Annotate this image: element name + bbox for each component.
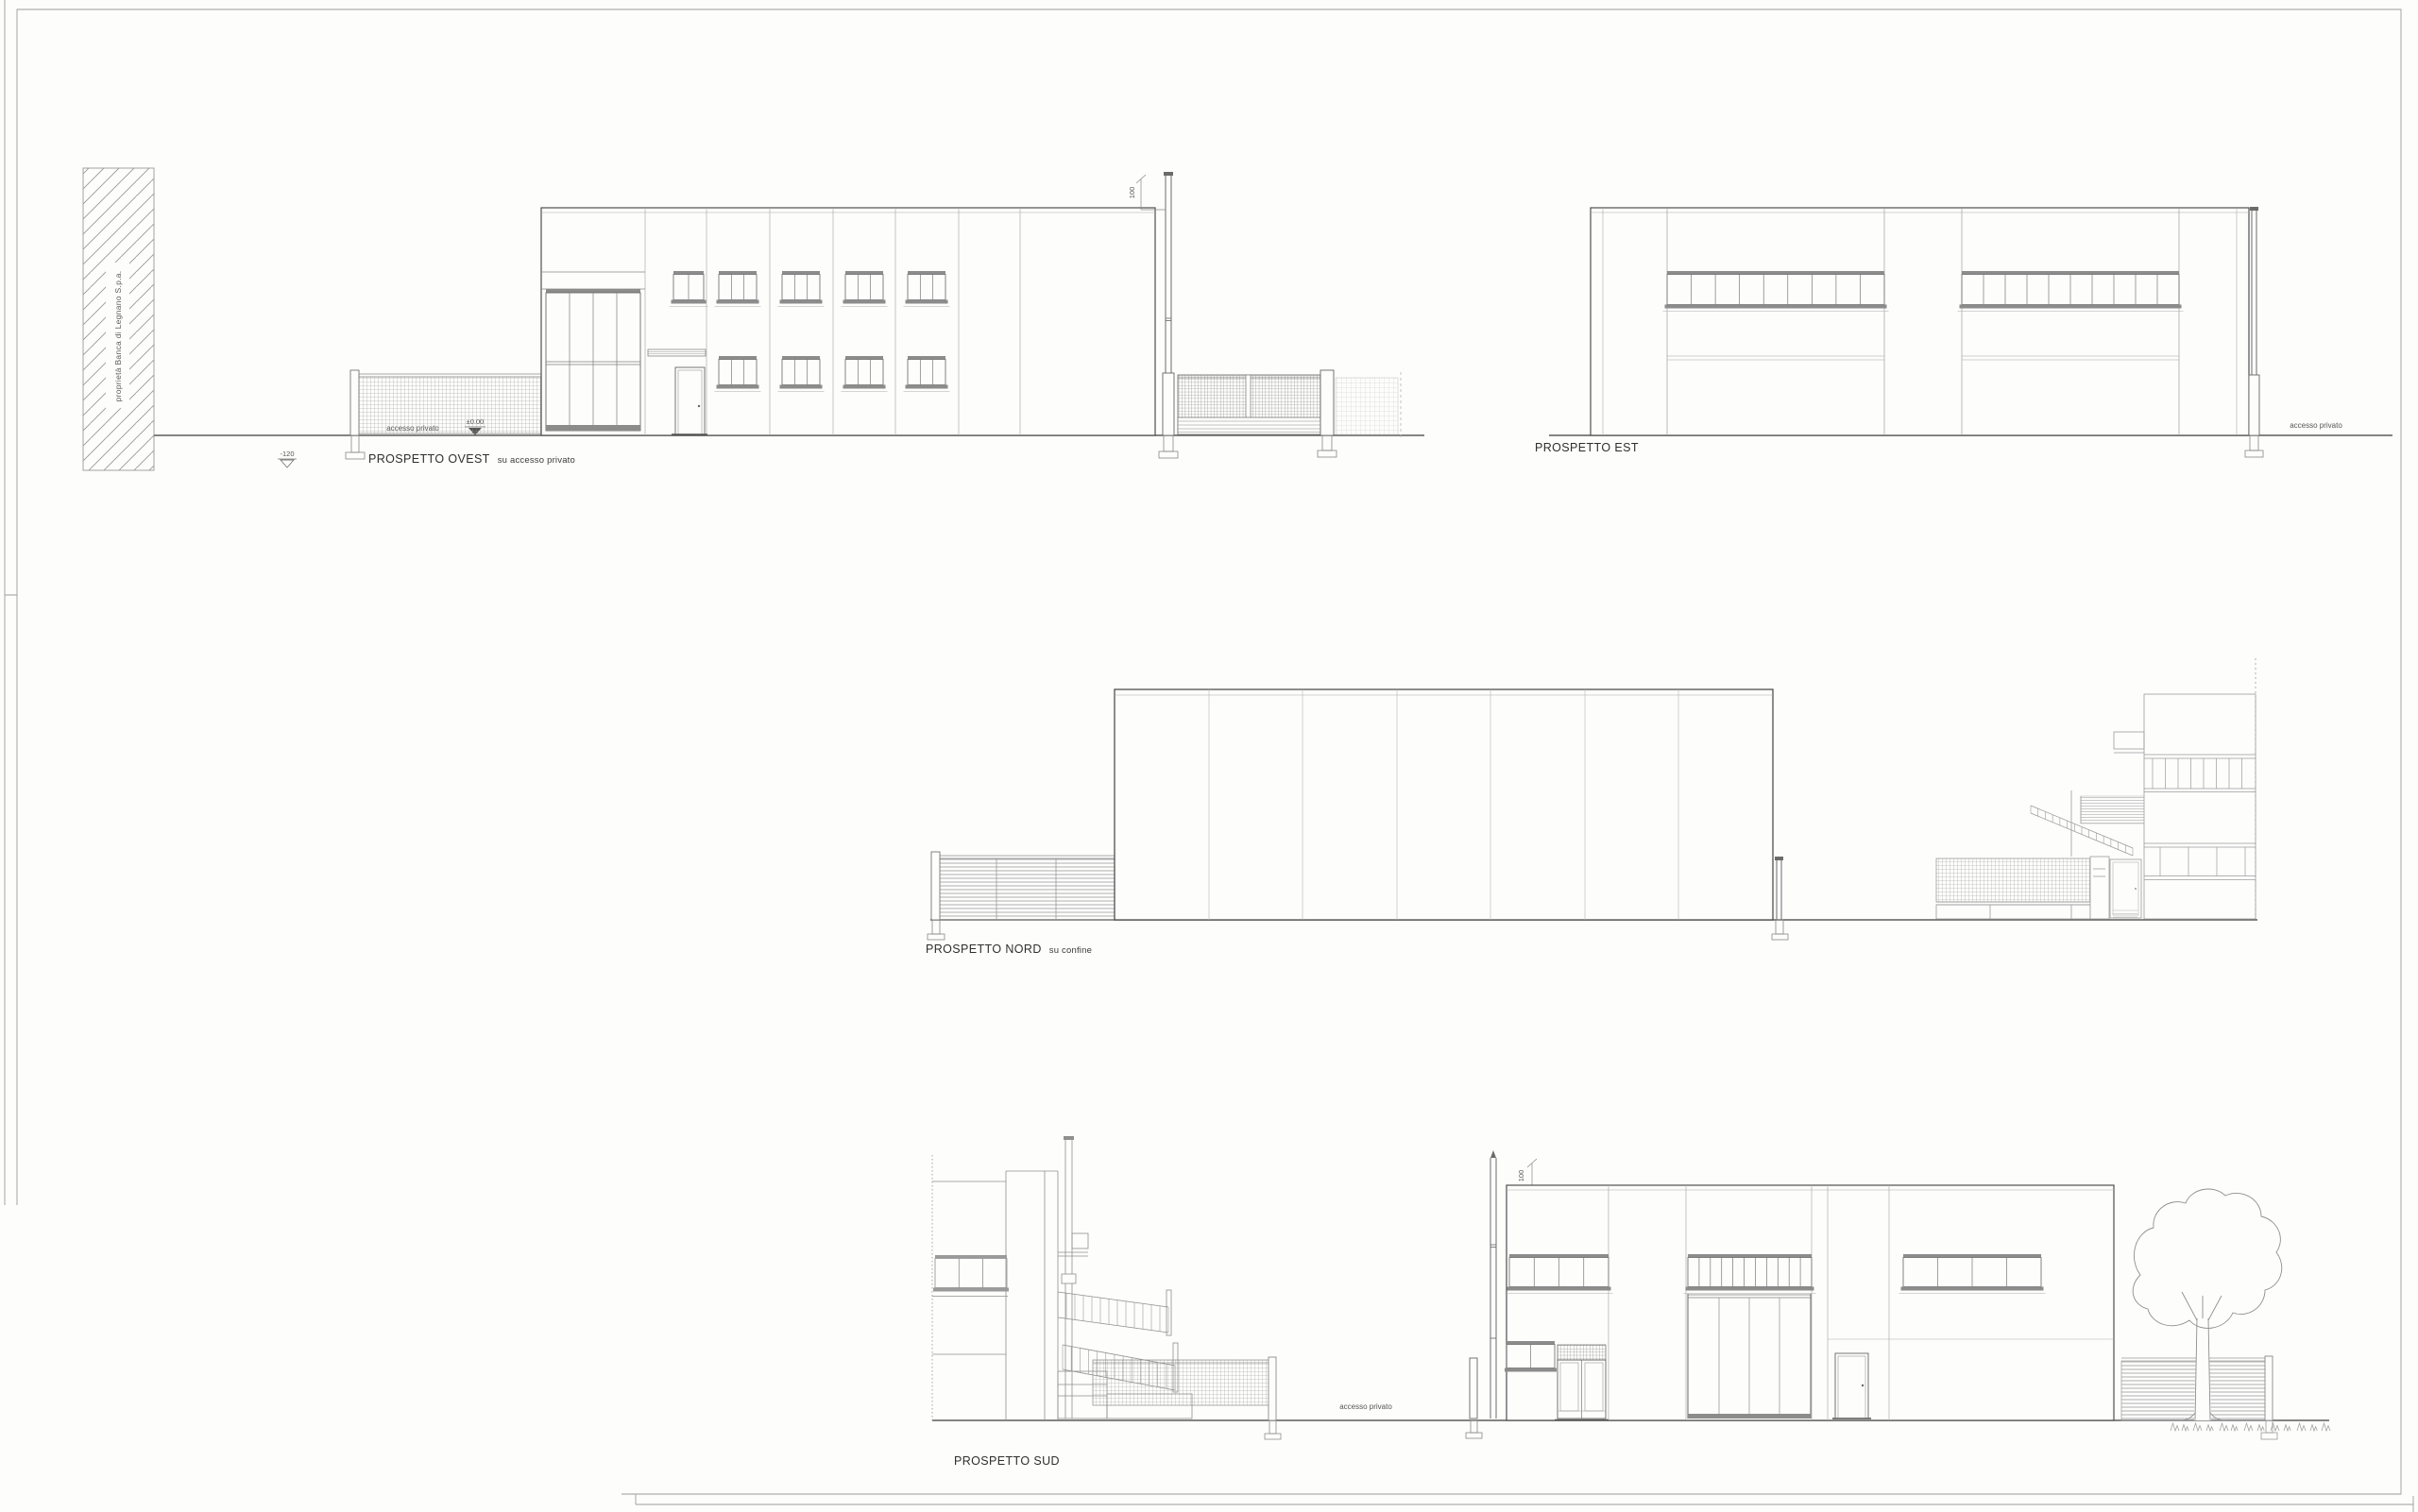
- elevation-drawing-canvas: proprietà Banca di Legnano S.p.a. -120 a…: [0, 0, 2418, 1512]
- ovest-title: PROSPETTO OVESTsu accesso privato: [368, 452, 575, 466]
- nord-left-fence: [928, 852, 1115, 940]
- ovest-left-fence: [346, 370, 541, 459]
- nord-window-mullions: [2153, 758, 2245, 876]
- svg-text:100: 100: [1517, 1170, 1525, 1182]
- nord-blank-wall: [1115, 689, 1773, 920]
- nord-title: PROSPETTO NORDsu confine: [926, 943, 1092, 956]
- est-title: PROSPETTO EST: [1535, 441, 1639, 454]
- sud-access-label: accesso privato: [1339, 1402, 1392, 1411]
- ovest-pole-dimension: 100: [1128, 175, 1166, 210]
- svg-text:100: 100: [1128, 187, 1136, 199]
- est-access-label: accesso privato: [2290, 421, 2342, 430]
- ovest-gate: [1178, 370, 1337, 457]
- ovest-flag-pole: [1159, 172, 1178, 458]
- sud-left-complex: [932, 1136, 1281, 1439]
- nord-gate-post: [1772, 857, 1788, 940]
- ovest-building: [541, 208, 1155, 435]
- ovest-background-fence: [1336, 372, 1401, 440]
- sud-title: PROSPETTO SUD: [954, 1454, 1060, 1468]
- nord-background-structures: [1936, 658, 2256, 919]
- boundary-wall-hatched: proprietà Banca di Legnano S.p.a.: [83, 168, 154, 470]
- svg-text:-120: -120: [280, 450, 294, 458]
- prospetto-sud-elevation: accesso privato: [932, 1136, 2330, 1468]
- prospetto-ovest-elevation: proprietà Banca di Legnano S.p.a. -120 a…: [83, 168, 1424, 470]
- sud-building: [1505, 1185, 2114, 1420]
- est-building: [1591, 208, 2249, 435]
- sud-shrub-marks: [2171, 1423, 2330, 1431]
- prospetto-nord-elevation: PROSPETTO NORDsu confine: [926, 658, 2257, 956]
- neighbor-property-label: proprietà Banca di Legnano S.p.a.: [113, 271, 123, 402]
- prospetto-est-elevation: accesso privato PROSPETTO EST: [1535, 207, 2392, 457]
- sud-fence-post: [1466, 1358, 1482, 1438]
- level-marker-low: -120: [278, 450, 297, 467]
- drawing-sheet: proprietà Banca di Legnano S.p.a. -120 a…: [0, 0, 2418, 1512]
- sud-antenna-pole: [1490, 1150, 1496, 1419]
